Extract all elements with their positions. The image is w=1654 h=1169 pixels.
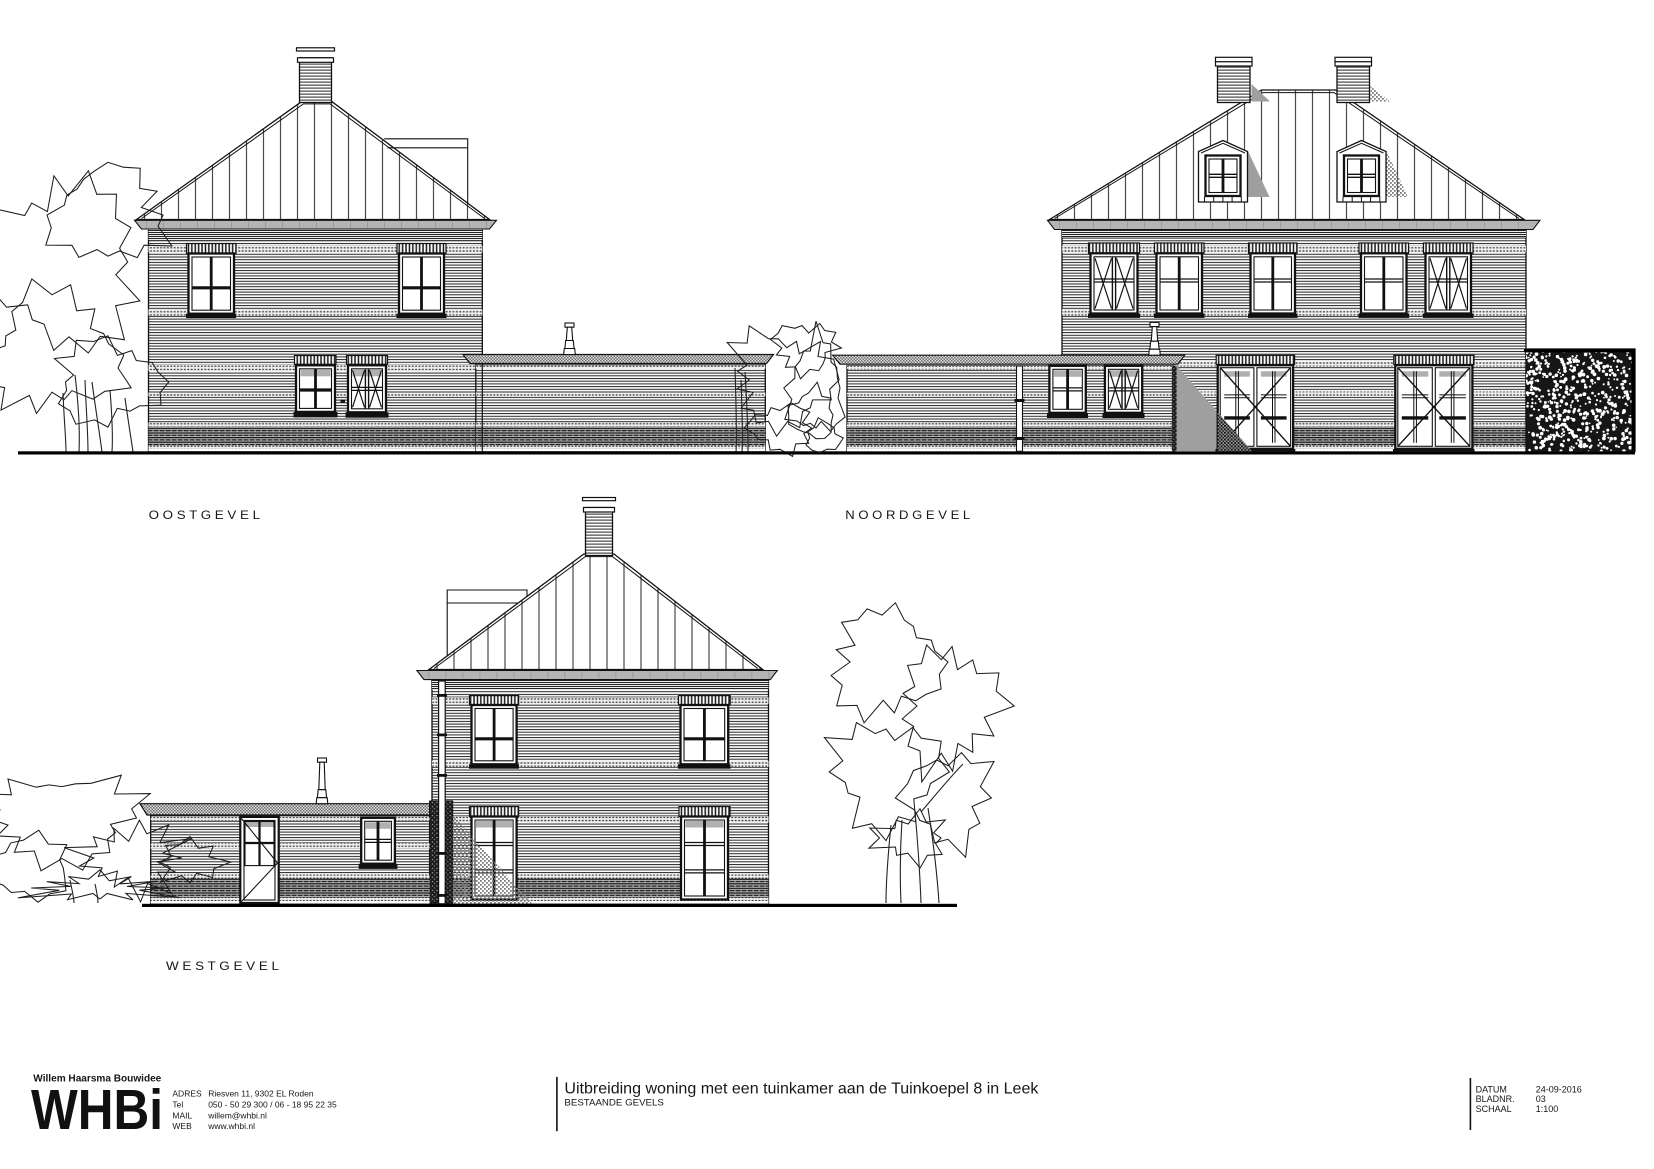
svg-text:WEB: WEB (172, 1121, 192, 1131)
svg-text:03: 03 (1536, 1094, 1546, 1104)
svg-text:1:100: 1:100 (1536, 1104, 1559, 1114)
svg-text:24-09-2016: 24-09-2016 (1536, 1084, 1582, 1094)
svg-text:WHBi: WHBi (31, 1078, 163, 1142)
svg-text:O O S T G E V E L: O O S T G E V E L (149, 508, 261, 522)
svg-text:050 - 50 29 300 / 06 - 18 95 2: 050 - 50 29 300 / 06 - 18 95 22 35 (208, 1100, 337, 1110)
svg-text:Riesven 11, 9302 EL Roden: Riesven 11, 9302 EL Roden (208, 1089, 314, 1099)
svg-text:Tel: Tel (172, 1100, 183, 1110)
svg-text:W E S T G E V E L: W E S T G E V E L (166, 959, 279, 973)
svg-text:www.whbi.nl: www.whbi.nl (207, 1121, 255, 1131)
svg-text:willem@whbi.nl: willem@whbi.nl (207, 1110, 267, 1120)
svg-text:DATUM: DATUM (1476, 1084, 1507, 1094)
svg-text:BESTAANDE GEVELS: BESTAANDE GEVELS (564, 1098, 664, 1108)
svg-text:N O O R D G E V E L: N O O R D G E V E L (845, 508, 970, 522)
svg-text:BLADNR.: BLADNR. (1476, 1094, 1515, 1104)
svg-text:SCHAAL: SCHAAL (1476, 1104, 1512, 1114)
svg-text:Uitbreiding woning met een tui: Uitbreiding woning met een tuinkamer aan… (564, 1081, 1039, 1098)
svg-text:MAIL: MAIL (172, 1110, 192, 1120)
svg-text:ADRES: ADRES (172, 1089, 202, 1099)
